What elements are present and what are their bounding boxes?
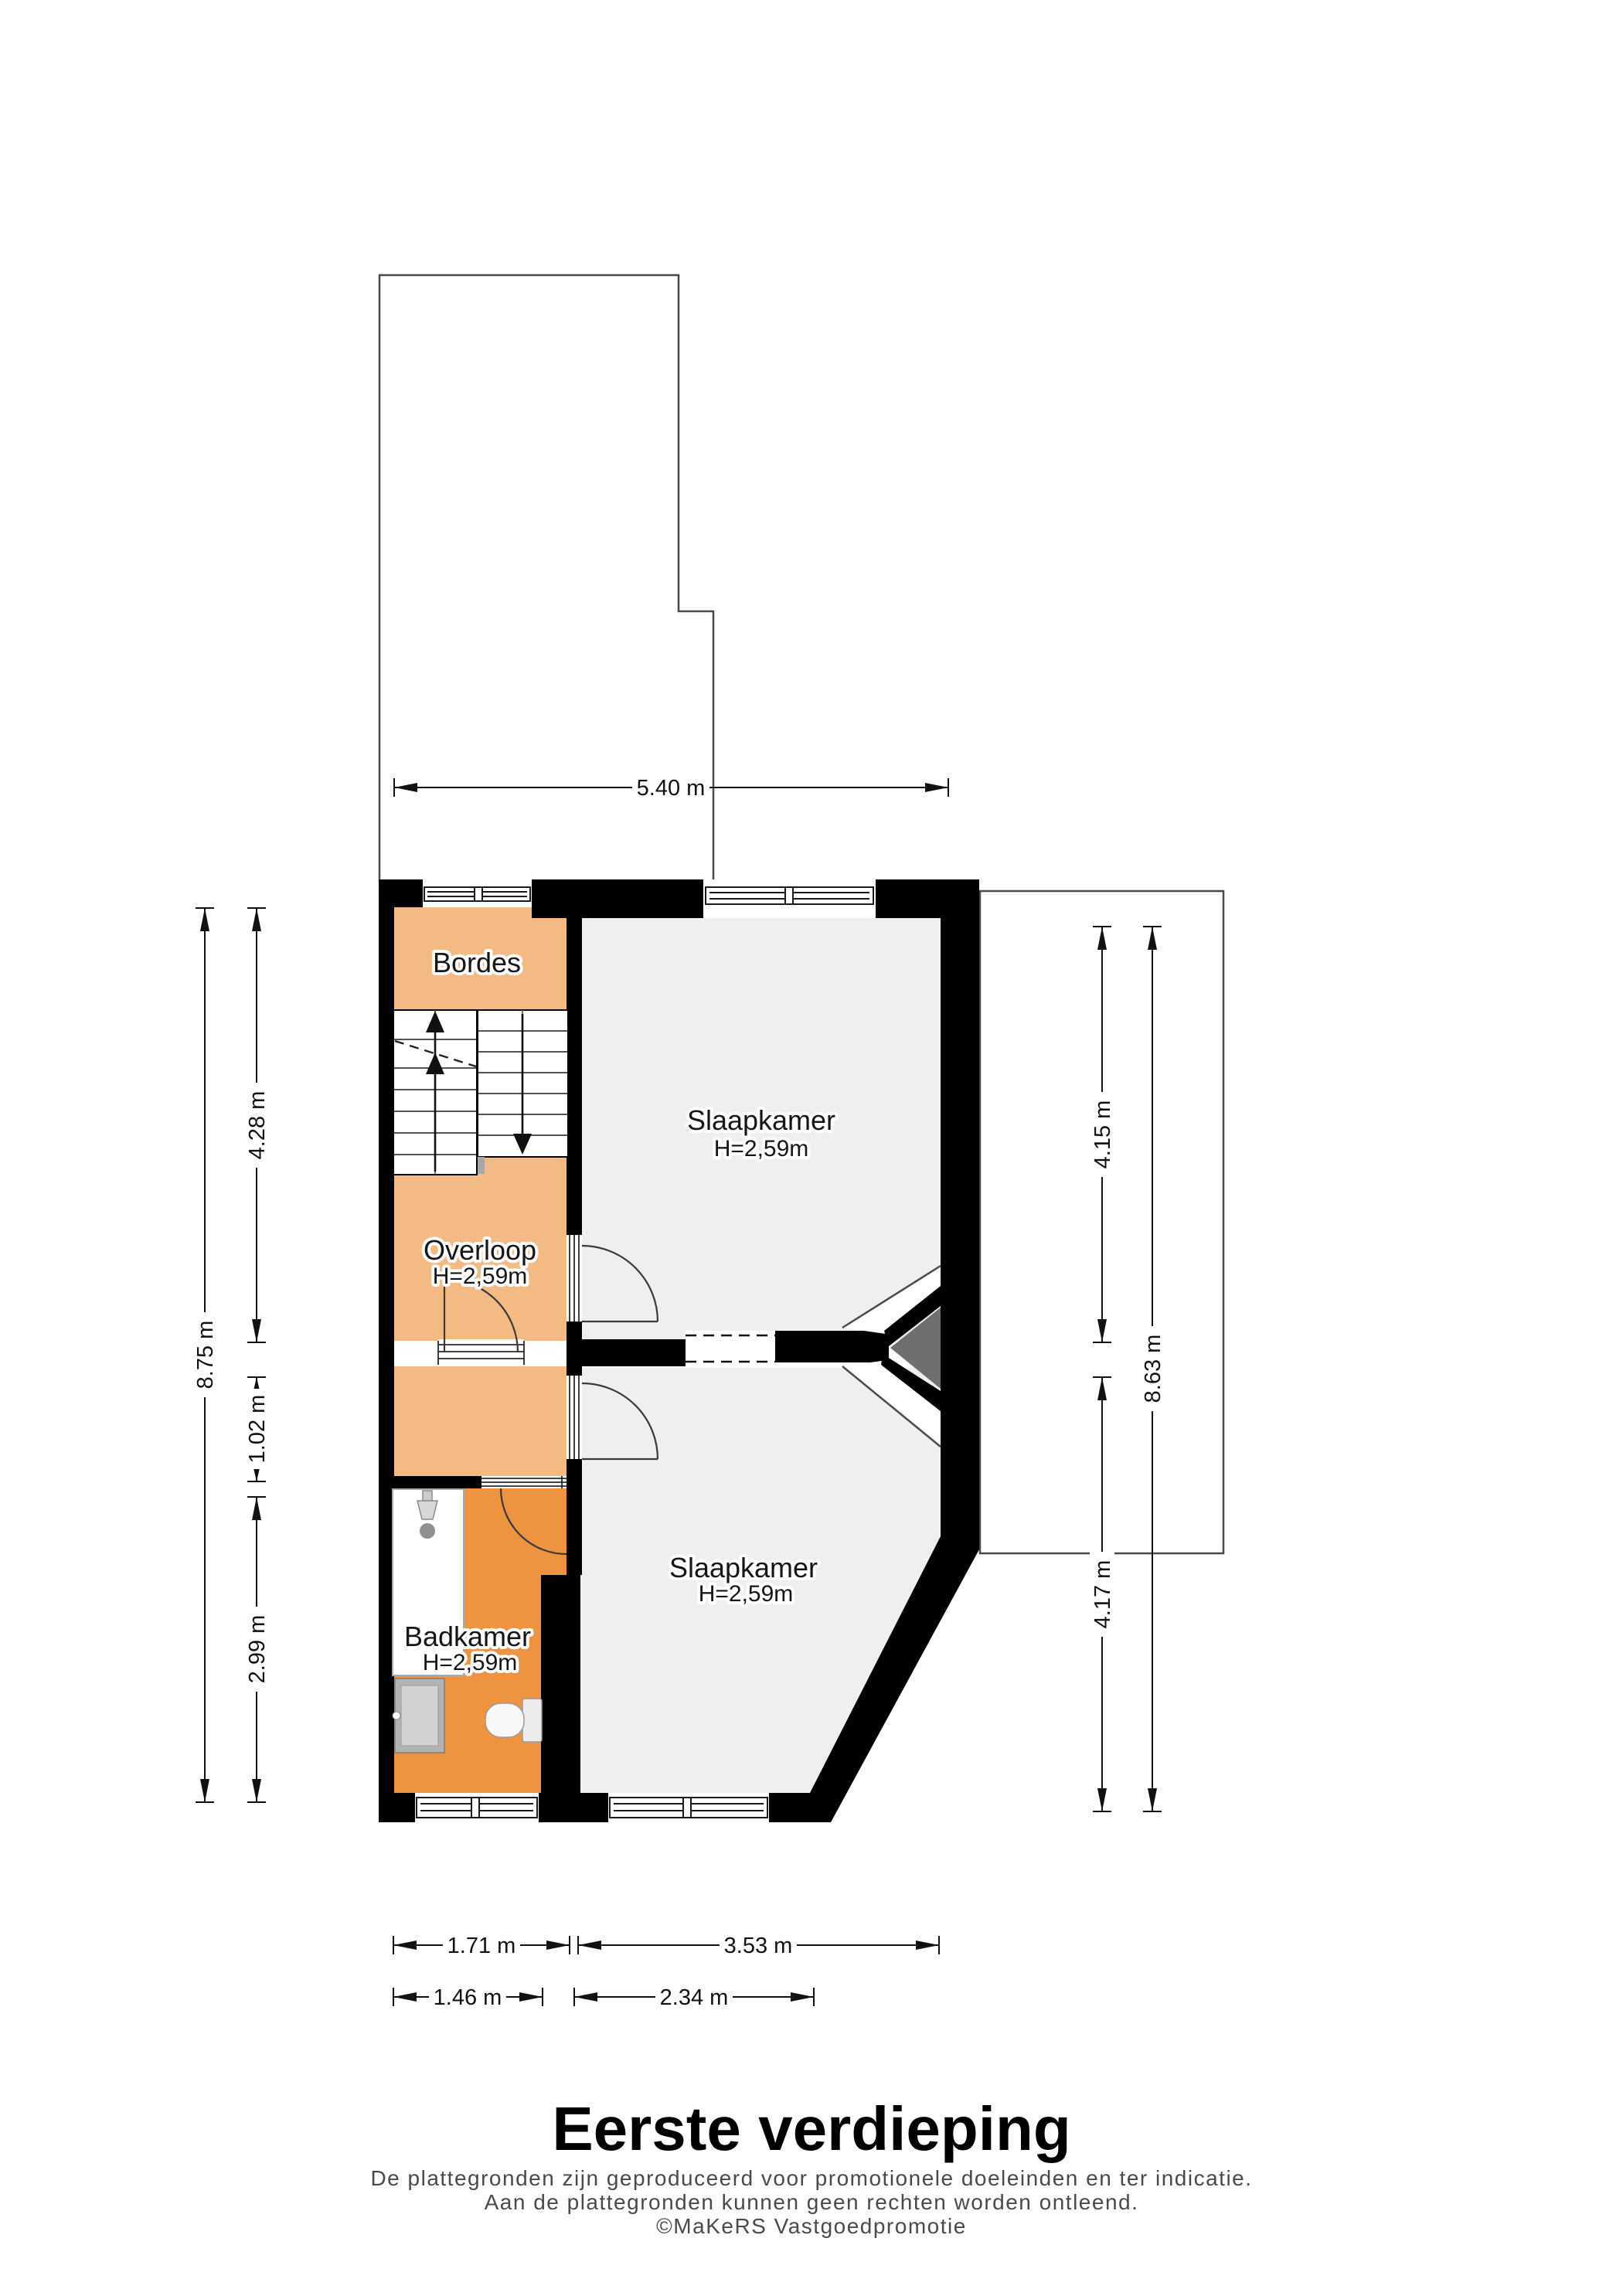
label-slaapkamer-voor-height: H=2,59m xyxy=(714,1136,809,1162)
opening-badkamer-door xyxy=(481,1476,567,1488)
dim-label-left-seg2: 1.02 m xyxy=(245,1395,270,1464)
dim-label-right-seg1: 4.15 m xyxy=(1091,1100,1115,1169)
dim-left-seg-3: 2.99 m xyxy=(244,1497,270,1802)
shower-drain-icon xyxy=(420,1523,435,1539)
label-badkamer-height: H=2,59m xyxy=(423,1650,518,1675)
label-slaapkamer-achter: Slaapkamer xyxy=(669,1552,818,1583)
dim-right-seg-2: 4.17 m xyxy=(1090,1377,1115,1811)
window-slaapkamer-achter-bottom xyxy=(608,1793,769,1822)
staircase xyxy=(393,1010,568,1175)
floorplan-svg: 5.40 m 8.75 m 4.28 m xyxy=(0,0,1623,2296)
page-title: Eerste verdieping xyxy=(552,2094,1070,2163)
label-slaapkamer-achter-height: H=2,59m xyxy=(699,1581,794,1607)
dim-left-seg-2: 1.02 m xyxy=(244,1377,270,1481)
label-badkamer: Badkamer xyxy=(404,1621,531,1652)
label-overloop: Overloop xyxy=(424,1234,536,1266)
window-slaapkamer-voor-top xyxy=(703,879,876,918)
opening-closet-slaapkamer xyxy=(567,1376,582,1459)
footer-line-3: ©MaKeRS Vastgoedpromotie xyxy=(656,2214,967,2238)
dim-bottom-2a: 1.46 m xyxy=(393,1985,543,2010)
dim-bottom-1b: 3.53 m xyxy=(578,1933,939,1958)
dim-label-left-outer: 8.75 m xyxy=(193,1321,218,1390)
dim-right-outer: 8.63 m xyxy=(1140,927,1165,1811)
dim-right-seg-1: 4.15 m xyxy=(1090,927,1115,1342)
opening-overloop-closet xyxy=(438,1339,524,1366)
dim-label-bottom-1b: 3.53 m xyxy=(724,1934,793,1958)
dim-label-right-outer: 8.63 m xyxy=(1141,1335,1165,1403)
label-overloop-height: H=2,59m xyxy=(433,1264,528,1289)
dim-label-bottom-1a: 1.71 m xyxy=(447,1934,516,1958)
window-badkamer-bottom xyxy=(415,1793,539,1822)
stair-landing-mark xyxy=(478,1157,485,1174)
dim-bottom-2b: 2.34 m xyxy=(574,1985,814,2010)
floor-closet xyxy=(393,1366,567,1476)
window-bordes-top xyxy=(423,879,532,907)
label-bordes: Bordes xyxy=(433,947,521,978)
washbasin xyxy=(393,1679,444,1753)
footer-line-2: Aan de plattegronden kunnen geen rechten… xyxy=(485,2190,1139,2214)
dim-label-bottom-2b: 2.34 m xyxy=(660,1985,729,2010)
footer-line-1: De plattegronden zijn geproduceerd voor … xyxy=(370,2166,1252,2190)
dim-bottom-1a: 1.71 m xyxy=(393,1933,570,1958)
dim-left-seg-1: 4.28 m xyxy=(244,908,270,1342)
dim-top: 5.40 m xyxy=(394,775,948,801)
dim-left-outer: 8.75 m xyxy=(192,908,218,1802)
dim-label-left-seg3: 2.99 m xyxy=(245,1615,270,1684)
dim-label-left-seg1: 4.28 m xyxy=(245,1091,270,1160)
dim-label-top: 5.40 m xyxy=(637,776,706,801)
toilet xyxy=(485,1699,542,1742)
dim-label-bottom-2a: 1.46 m xyxy=(434,1985,502,2010)
dim-label-right-seg2: 4.17 m xyxy=(1091,1560,1115,1629)
floorplan-page: 5.40 m 8.75 m 4.28 m xyxy=(0,0,1623,2296)
title-block: Eerste verdieping De plattegronden zijn … xyxy=(370,2094,1252,2238)
opening-overloop-slaapkamer xyxy=(567,1235,582,1321)
label-slaapkamer-voor: Slaapkamer xyxy=(687,1104,835,1136)
